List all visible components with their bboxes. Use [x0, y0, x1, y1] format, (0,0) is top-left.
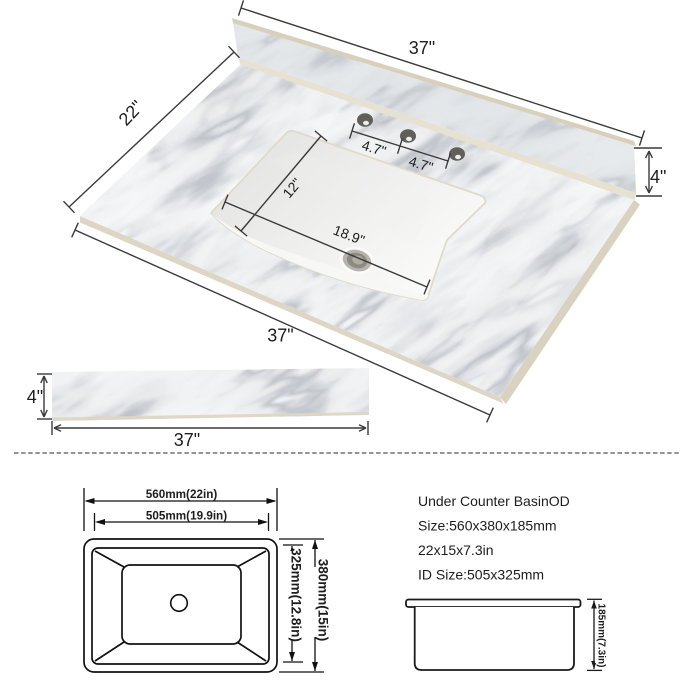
svg-text:37": 37" — [174, 430, 200, 450]
svg-text:560mm(22in): 560mm(22in) — [146, 488, 218, 501]
svg-text:325mm(12.8in): 325mm(12.8in) — [289, 548, 304, 642]
svg-text:37": 37" — [409, 38, 435, 58]
svg-text:37": 37" — [267, 326, 293, 346]
svg-text:4": 4" — [27, 387, 43, 407]
svg-text:ID Size:505x325mm: ID Size:505x325mm — [418, 567, 544, 583]
svg-text:Size:560x380x185mm: Size:560x380x185mm — [418, 518, 557, 534]
svg-text:Under Counter BasinOD: Under Counter BasinOD — [418, 493, 570, 509]
svg-text:22x15x7.3in: 22x15x7.3in — [418, 542, 494, 558]
svg-text:380mm(15in): 380mm(15in) — [316, 559, 331, 642]
svg-text:185mm(7.3in): 185mm(7.3in) — [596, 604, 607, 668]
svg-text:505mm(19.9in): 505mm(19.9in) — [146, 509, 227, 522]
svg-text:4": 4" — [650, 167, 666, 187]
